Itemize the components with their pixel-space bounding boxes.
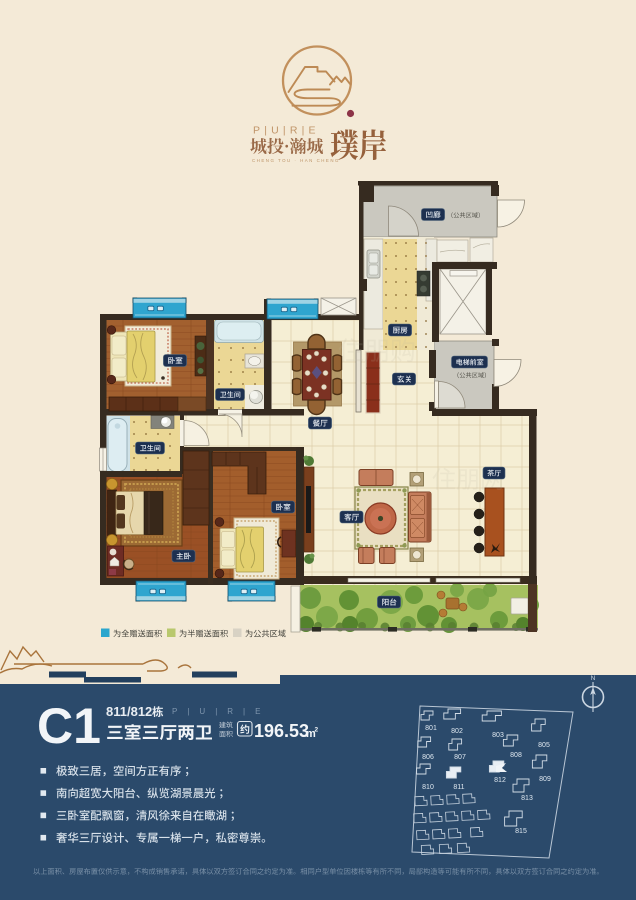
svg-text:P|U|R|E: P|U|R|E (253, 125, 320, 137)
svg-text:812: 812 (494, 777, 506, 784)
svg-text:805: 805 (538, 742, 550, 749)
svg-text:N: N (591, 675, 596, 682)
svg-text:811/812: 811/812 (106, 704, 152, 719)
svg-text:P|U|R|E: P|U|R|E (172, 707, 270, 716)
svg-text:813: 813 (521, 795, 533, 802)
svg-text:810: 810 (422, 784, 434, 791)
svg-text:806: 806 (422, 754, 434, 761)
svg-text:802: 802 (451, 728, 463, 735)
svg-text:807: 807 (454, 754, 466, 761)
svg-text:808: 808 (510, 752, 522, 759)
svg-text:C1: C1 (37, 698, 101, 754)
svg-text:815: 815 (515, 828, 527, 835)
svg-text:CHENG TOU · HAN CHENG: CHENG TOU · HAN CHENG (252, 158, 340, 163)
svg-text:801: 801 (425, 725, 437, 732)
svg-text:809: 809 (539, 776, 551, 783)
svg-text:803: 803 (492, 732, 504, 739)
svg-text:196.53: 196.53 (254, 721, 309, 741)
svg-text:2: 2 (315, 727, 319, 734)
svg-text:811: 811 (453, 784, 464, 791)
